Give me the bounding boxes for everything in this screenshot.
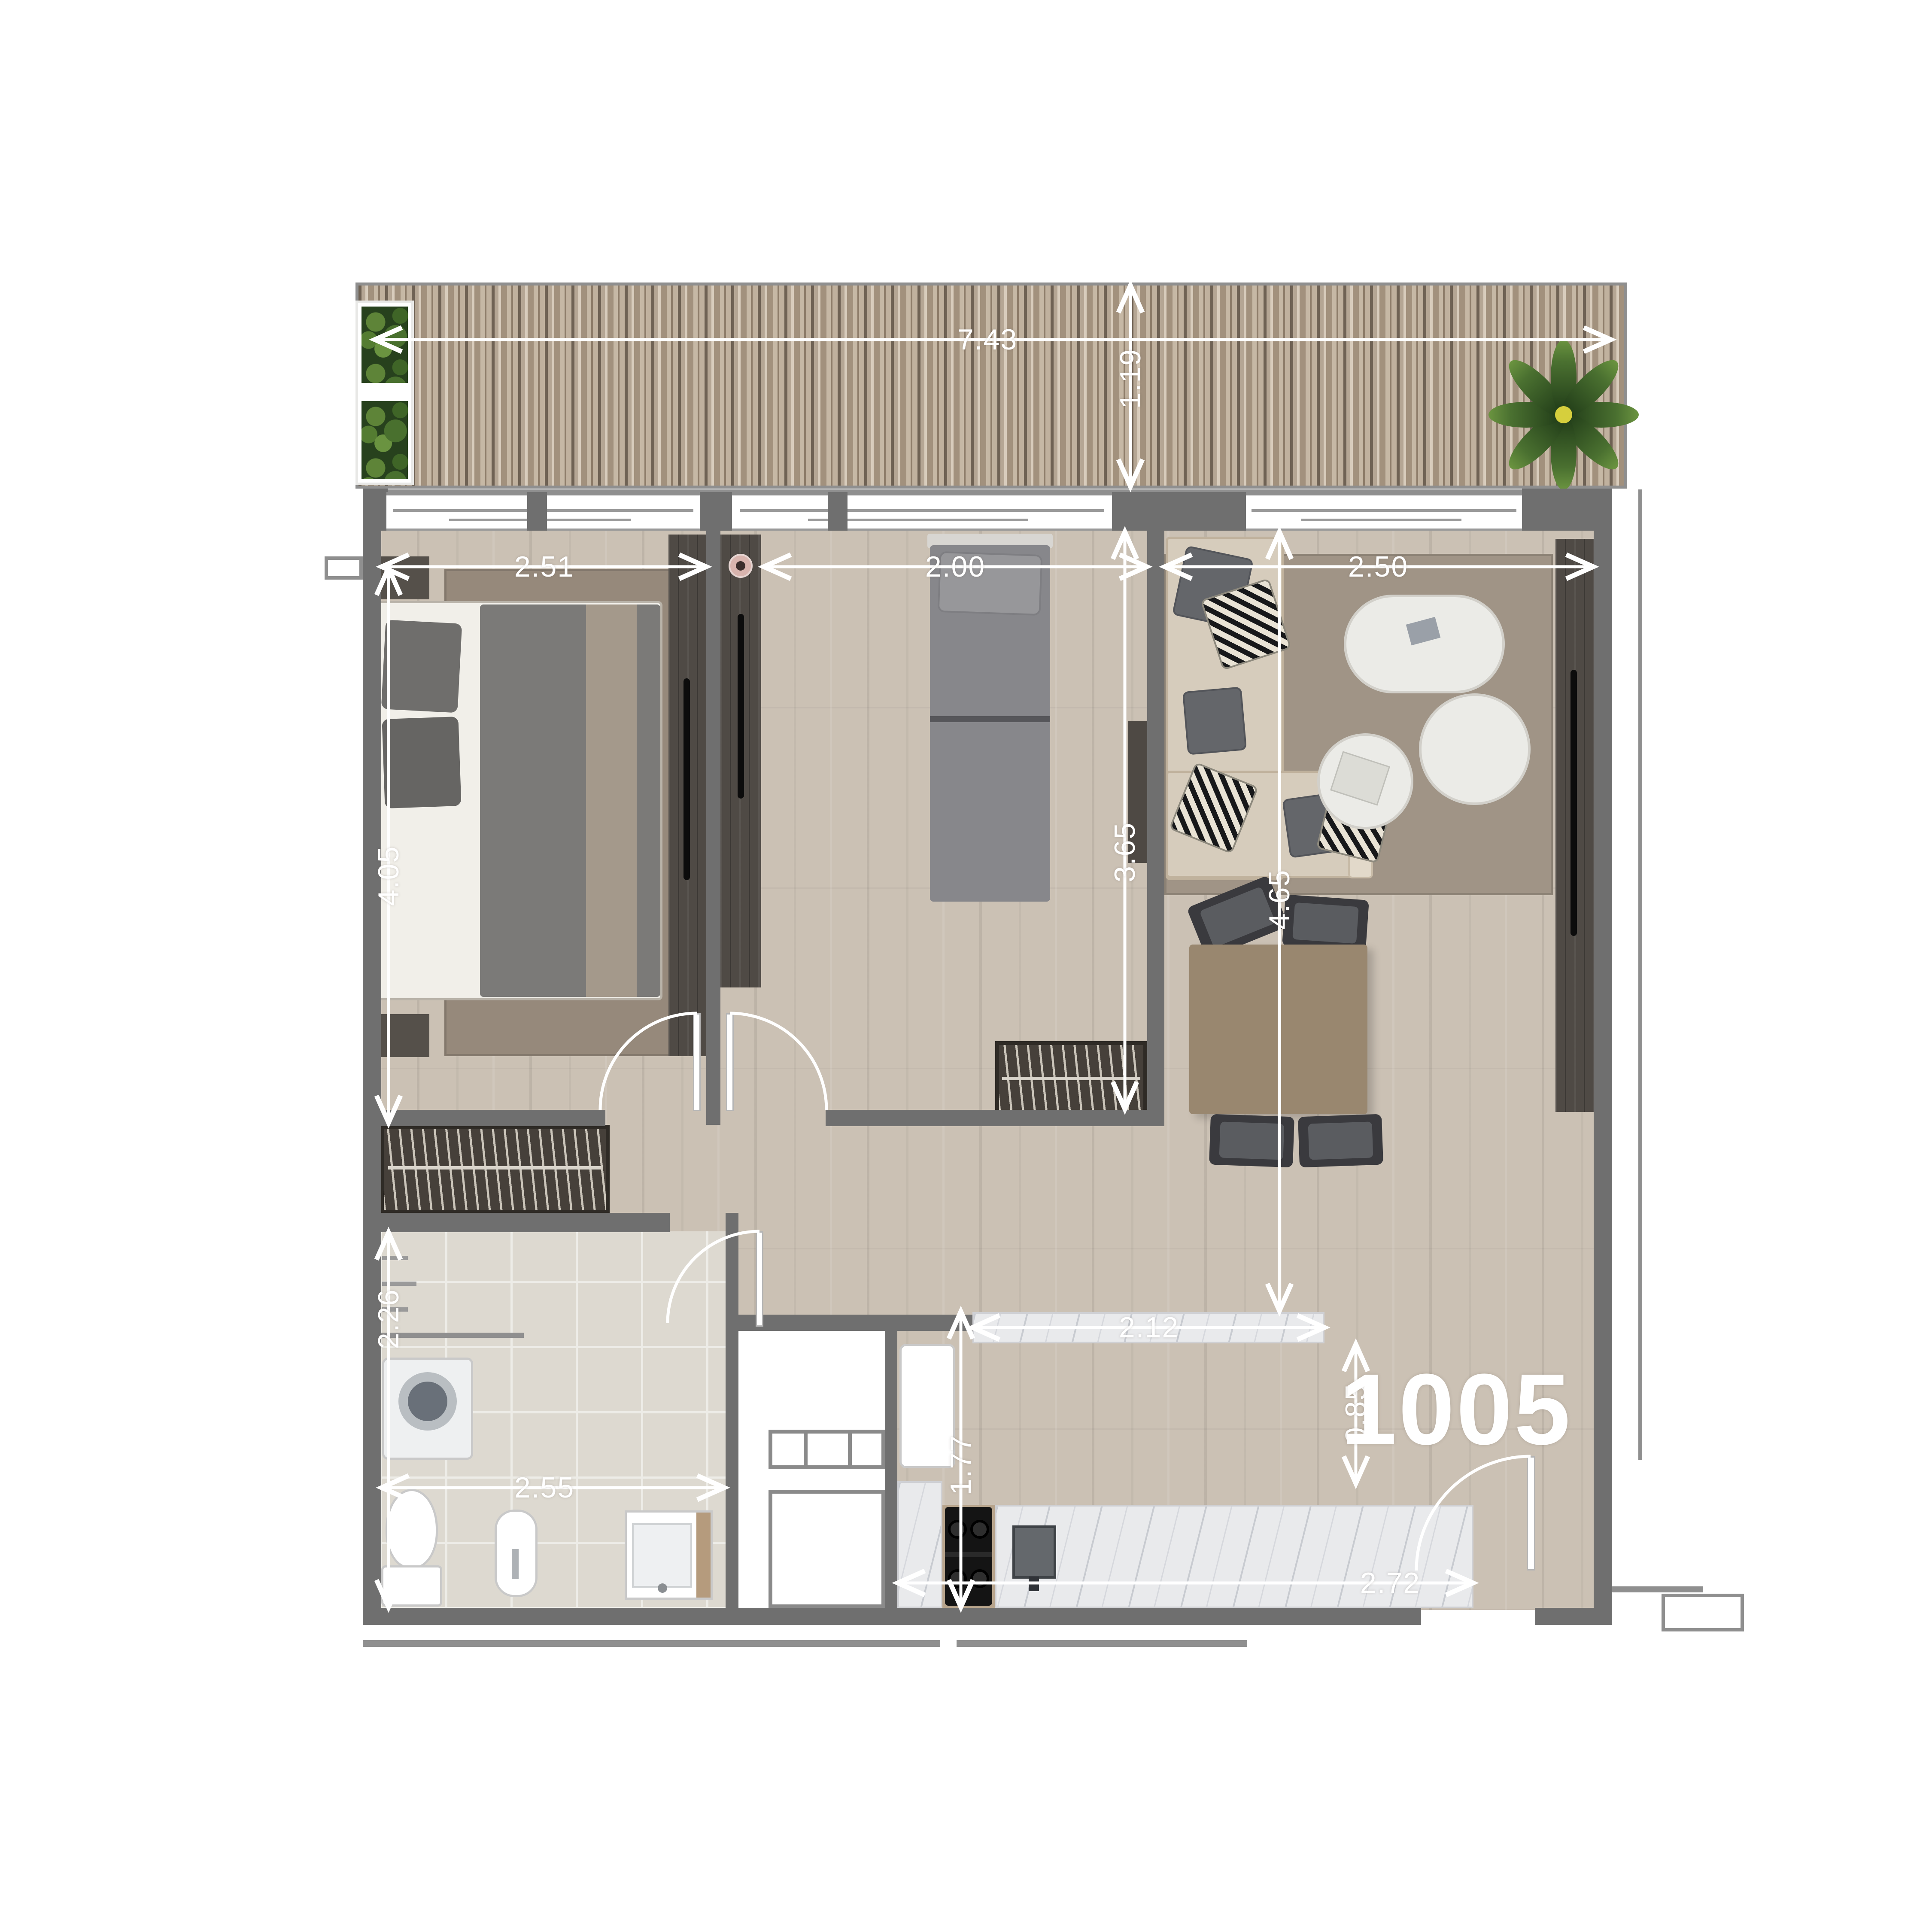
dining-chair-4 <box>1298 1114 1383 1168</box>
wall-pier-1 <box>700 492 732 531</box>
wall-exterior-left <box>363 489 381 1625</box>
corridor-line-right <box>1612 1586 1703 1592</box>
dim-deck-width: 7.43 <box>957 323 1018 356</box>
floor-plan: 7.43 1.19 2.51 2.00 2.50 4.05 3.65 4.65 … <box>0 0 1932 1932</box>
bedroom2-door-leaf <box>726 1013 734 1111</box>
shower-valve-1 <box>382 1256 408 1260</box>
wall-bed1-bottom <box>381 1110 605 1126</box>
boundary-line-bottom-1 <box>363 1640 940 1647</box>
bath-basin <box>632 1523 692 1588</box>
dim-living-depth: 4.65 <box>1263 869 1296 930</box>
plant-center <box>1555 406 1572 423</box>
dim-living-width: 2.50 <box>1348 550 1408 583</box>
bedroom2-tv <box>738 614 744 799</box>
coffee-table-oval <box>1344 595 1505 693</box>
bedroom1-door-leaf <box>693 1013 701 1111</box>
wall-notch-left <box>325 556 363 580</box>
dim-bedroom2-depth: 3.65 <box>1108 822 1142 882</box>
coffee-table-round-large <box>1419 693 1531 805</box>
unit-number: 1005 <box>1341 1351 1572 1467</box>
toilet-tank <box>381 1565 442 1607</box>
shaft-cabinet-div2 <box>848 1431 852 1467</box>
bath-basin-drain <box>658 1583 667 1593</box>
wall-bathroom-right <box>726 1213 738 1609</box>
window-bedroom1-mullion <box>527 492 547 531</box>
wall-bottom-right <box>1535 1608 1612 1625</box>
wall-pier-2 <box>1112 492 1246 531</box>
dining-chair-3 <box>1209 1114 1294 1168</box>
stove-divider <box>945 1552 992 1557</box>
shower-valve-2 <box>382 1282 416 1286</box>
wall-bottom-main <box>363 1608 1421 1625</box>
kitchen-sink <box>1012 1525 1056 1579</box>
bedroom2-wardrobe <box>995 1041 1147 1118</box>
toilet-bowl <box>386 1489 438 1569</box>
bedroom1-nightstand-top <box>374 556 429 599</box>
bathroom-door-leaf <box>756 1231 763 1327</box>
wall-pier-topright <box>1522 489 1612 531</box>
bedroom1-tv <box>683 678 690 880</box>
wall-shaft-top <box>738 1315 972 1331</box>
washer-drum-inner <box>408 1382 447 1421</box>
window-bedroom2-mullion <box>828 492 848 531</box>
bath-vanity-wood-edge <box>696 1513 711 1598</box>
dim-deck-depth: 1.19 <box>1114 349 1147 409</box>
window-living <box>1246 492 1522 531</box>
shaft-cabinet <box>769 1430 885 1469</box>
dim-bedroom2-width: 2.00 <box>925 550 985 583</box>
wall-shaft-right <box>885 1331 897 1609</box>
planter-top <box>361 307 408 383</box>
dim-bedroom1-width: 2.51 <box>514 550 574 583</box>
bedroom2-duvet-fold <box>930 716 1050 722</box>
bedroom2-vase-center <box>736 561 745 571</box>
kitchen-counter-left <box>897 1481 942 1608</box>
wall-partition-bed1-bed2 <box>706 529 720 1125</box>
dim-kitchen-width: 2.72 <box>1360 1566 1420 1600</box>
dim-bathroom-width: 2.55 <box>514 1471 574 1504</box>
bidet-tap <box>512 1549 519 1579</box>
entry-door-leaf <box>1527 1456 1535 1571</box>
living-tv <box>1571 670 1577 936</box>
kitchen-faucet <box>1029 1577 1039 1591</box>
dim-kitchen-counter-width: 2.12 <box>1119 1311 1179 1344</box>
bedroom1-wardrobe <box>380 1125 610 1214</box>
stove-burner-3 <box>948 1569 967 1588</box>
boundary-line-right <box>1638 489 1642 1460</box>
wall-bed2-bottom <box>826 1110 1147 1126</box>
dim-bedroom1-depth: 4.05 <box>372 846 405 906</box>
bedroom1-pillow-bottom <box>382 717 461 808</box>
shaft-duct <box>769 1490 885 1608</box>
boundary-line-bottom-2 <box>957 1640 1247 1647</box>
dim-kitchen-depth: 1.77 <box>944 1435 978 1495</box>
bedroom1-throw <box>586 605 637 997</box>
shaft-cabinet-div1 <box>804 1431 808 1467</box>
sofa-pillow-3 <box>1182 687 1247 755</box>
stove-burner-1 <box>948 1520 967 1539</box>
stove-burner-2 <box>970 1520 989 1539</box>
bedroom1-nightstand-bottom <box>374 1014 429 1057</box>
planter-bottom <box>361 401 408 479</box>
wall-pier-topleft <box>363 489 388 531</box>
wall-exterior-right <box>1594 489 1612 1625</box>
wall-bed2-right <box>1147 529 1164 1126</box>
stove-burner-4 <box>970 1569 989 1588</box>
wall-bathroom-top <box>363 1213 670 1232</box>
corridor-box-right <box>1662 1594 1744 1631</box>
window-bedroom2 <box>732 492 1112 531</box>
bedroom1-pillow-top <box>381 620 462 713</box>
dining-table <box>1189 945 1367 1114</box>
dim-bathroom-depth: 2.26 <box>372 1289 405 1349</box>
deck-terrace <box>355 283 1627 489</box>
